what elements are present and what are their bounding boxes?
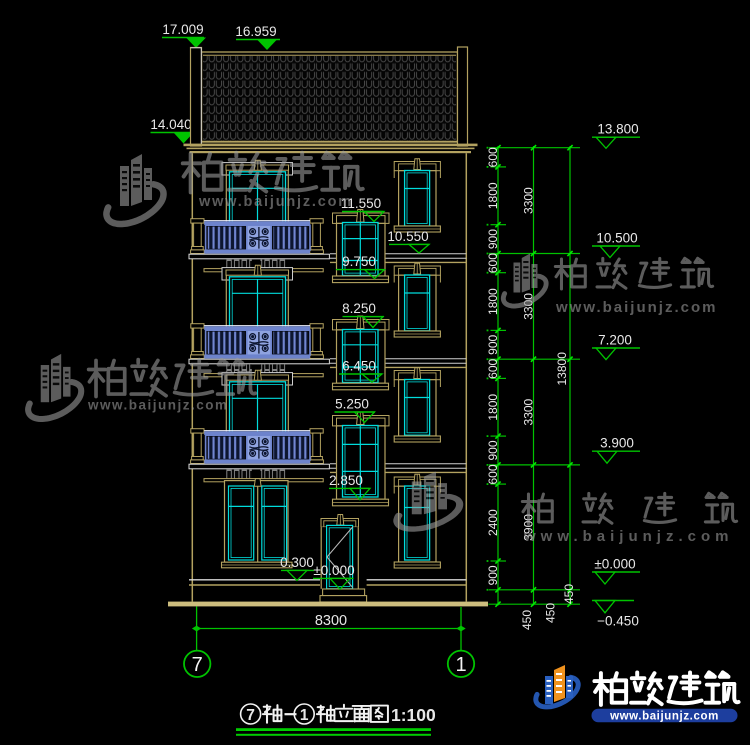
svg-text:13.800: 13.800 [597, 122, 638, 137]
svg-text:8.250: 8.250 [342, 301, 376, 316]
svg-text:17.009: 17.009 [162, 22, 203, 37]
svg-text:1800: 1800 [486, 394, 500, 421]
svg-text:1: 1 [300, 707, 309, 724]
svg-text:900: 900 [486, 440, 500, 460]
svg-text:www.baijunjz.com: www.baijunjz.com [87, 398, 229, 413]
svg-text:3300: 3300 [522, 187, 536, 214]
svg-text:7.200: 7.200 [598, 333, 632, 348]
svg-text:8300: 8300 [315, 613, 347, 629]
svg-text:600: 600 [486, 358, 500, 378]
svg-text:2.850: 2.850 [329, 473, 363, 488]
svg-text:5.250: 5.250 [335, 397, 369, 412]
svg-text:10.500: 10.500 [596, 231, 637, 246]
svg-text:600: 600 [486, 253, 500, 273]
svg-text:900: 900 [486, 229, 500, 249]
svg-text:600: 600 [486, 464, 500, 484]
svg-text:7: 7 [192, 654, 203, 676]
svg-text:600: 600 [486, 147, 500, 167]
svg-text:9.750: 9.750 [342, 254, 376, 269]
svg-text:3300: 3300 [522, 398, 536, 425]
svg-text:450: 450 [520, 610, 534, 630]
svg-text:1800: 1800 [486, 182, 500, 209]
svg-text:±0.000: ±0.000 [594, 557, 635, 572]
svg-text:3.900: 3.900 [600, 436, 634, 451]
svg-text:0.300: 0.300 [280, 555, 314, 570]
svg-text:1800: 1800 [486, 288, 500, 315]
svg-text:±0.000: ±0.000 [313, 563, 354, 578]
svg-text:www.baijunjz.com: www.baijunjz.com [555, 299, 717, 316]
svg-text:450: 450 [544, 603, 558, 623]
svg-text:10.550: 10.550 [387, 229, 428, 244]
svg-text:450: 450 [562, 584, 576, 604]
svg-text:6.450: 6.450 [342, 359, 376, 374]
svg-text:1:100: 1:100 [391, 705, 436, 725]
svg-text:13800: 13800 [555, 352, 569, 386]
svg-text:900: 900 [486, 565, 500, 585]
svg-text:900: 900 [486, 334, 500, 354]
svg-text:−0.450: −0.450 [597, 614, 639, 629]
svg-text:www.baijunjz.com: www.baijunjz.com [523, 528, 733, 545]
svg-text:www.baijunjz.com: www.baijunjz.com [609, 710, 719, 722]
svg-text:www.baijunjz.com: www.baijunjz.com [198, 194, 353, 210]
svg-text:16.959: 16.959 [235, 24, 276, 39]
svg-text:14.040: 14.040 [150, 117, 191, 132]
svg-text:1: 1 [455, 654, 466, 676]
svg-text:2400: 2400 [486, 509, 500, 536]
svg-text:7: 7 [246, 707, 255, 724]
